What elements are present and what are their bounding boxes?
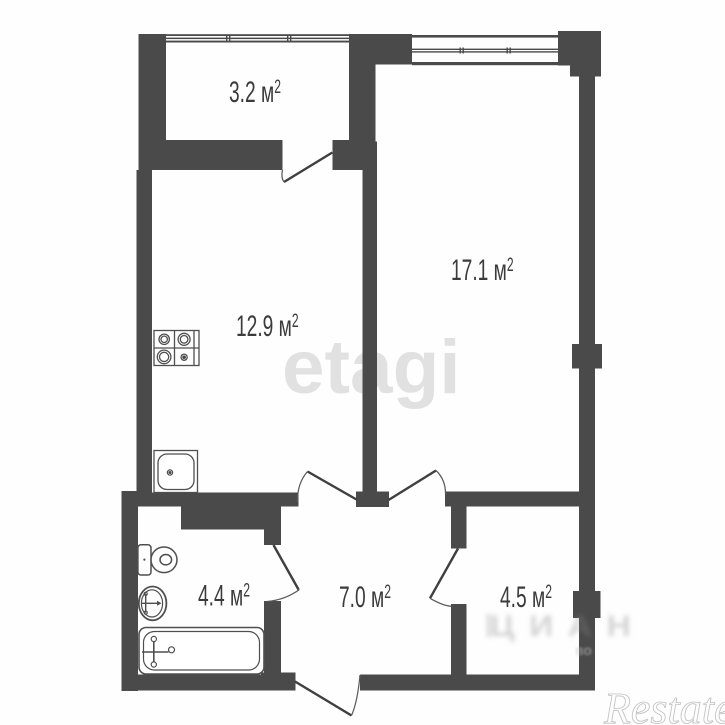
svg-text:Restate: Restate <box>603 684 725 725</box>
svg-text:ЦИАН: ЦИАН <box>490 609 645 643</box>
svg-text:3.2 м2: 3.2 м2 <box>229 76 281 109</box>
svg-text:4.4 м2: 4.4 м2 <box>198 579 250 612</box>
svg-text:7.0 м2: 7.0 м2 <box>339 581 391 614</box>
svg-text:во: во <box>575 642 592 658</box>
svg-text:17.1 м2: 17.1 м2 <box>451 254 514 287</box>
svg-text:12.9 м2: 12.9 м2 <box>236 310 299 343</box>
